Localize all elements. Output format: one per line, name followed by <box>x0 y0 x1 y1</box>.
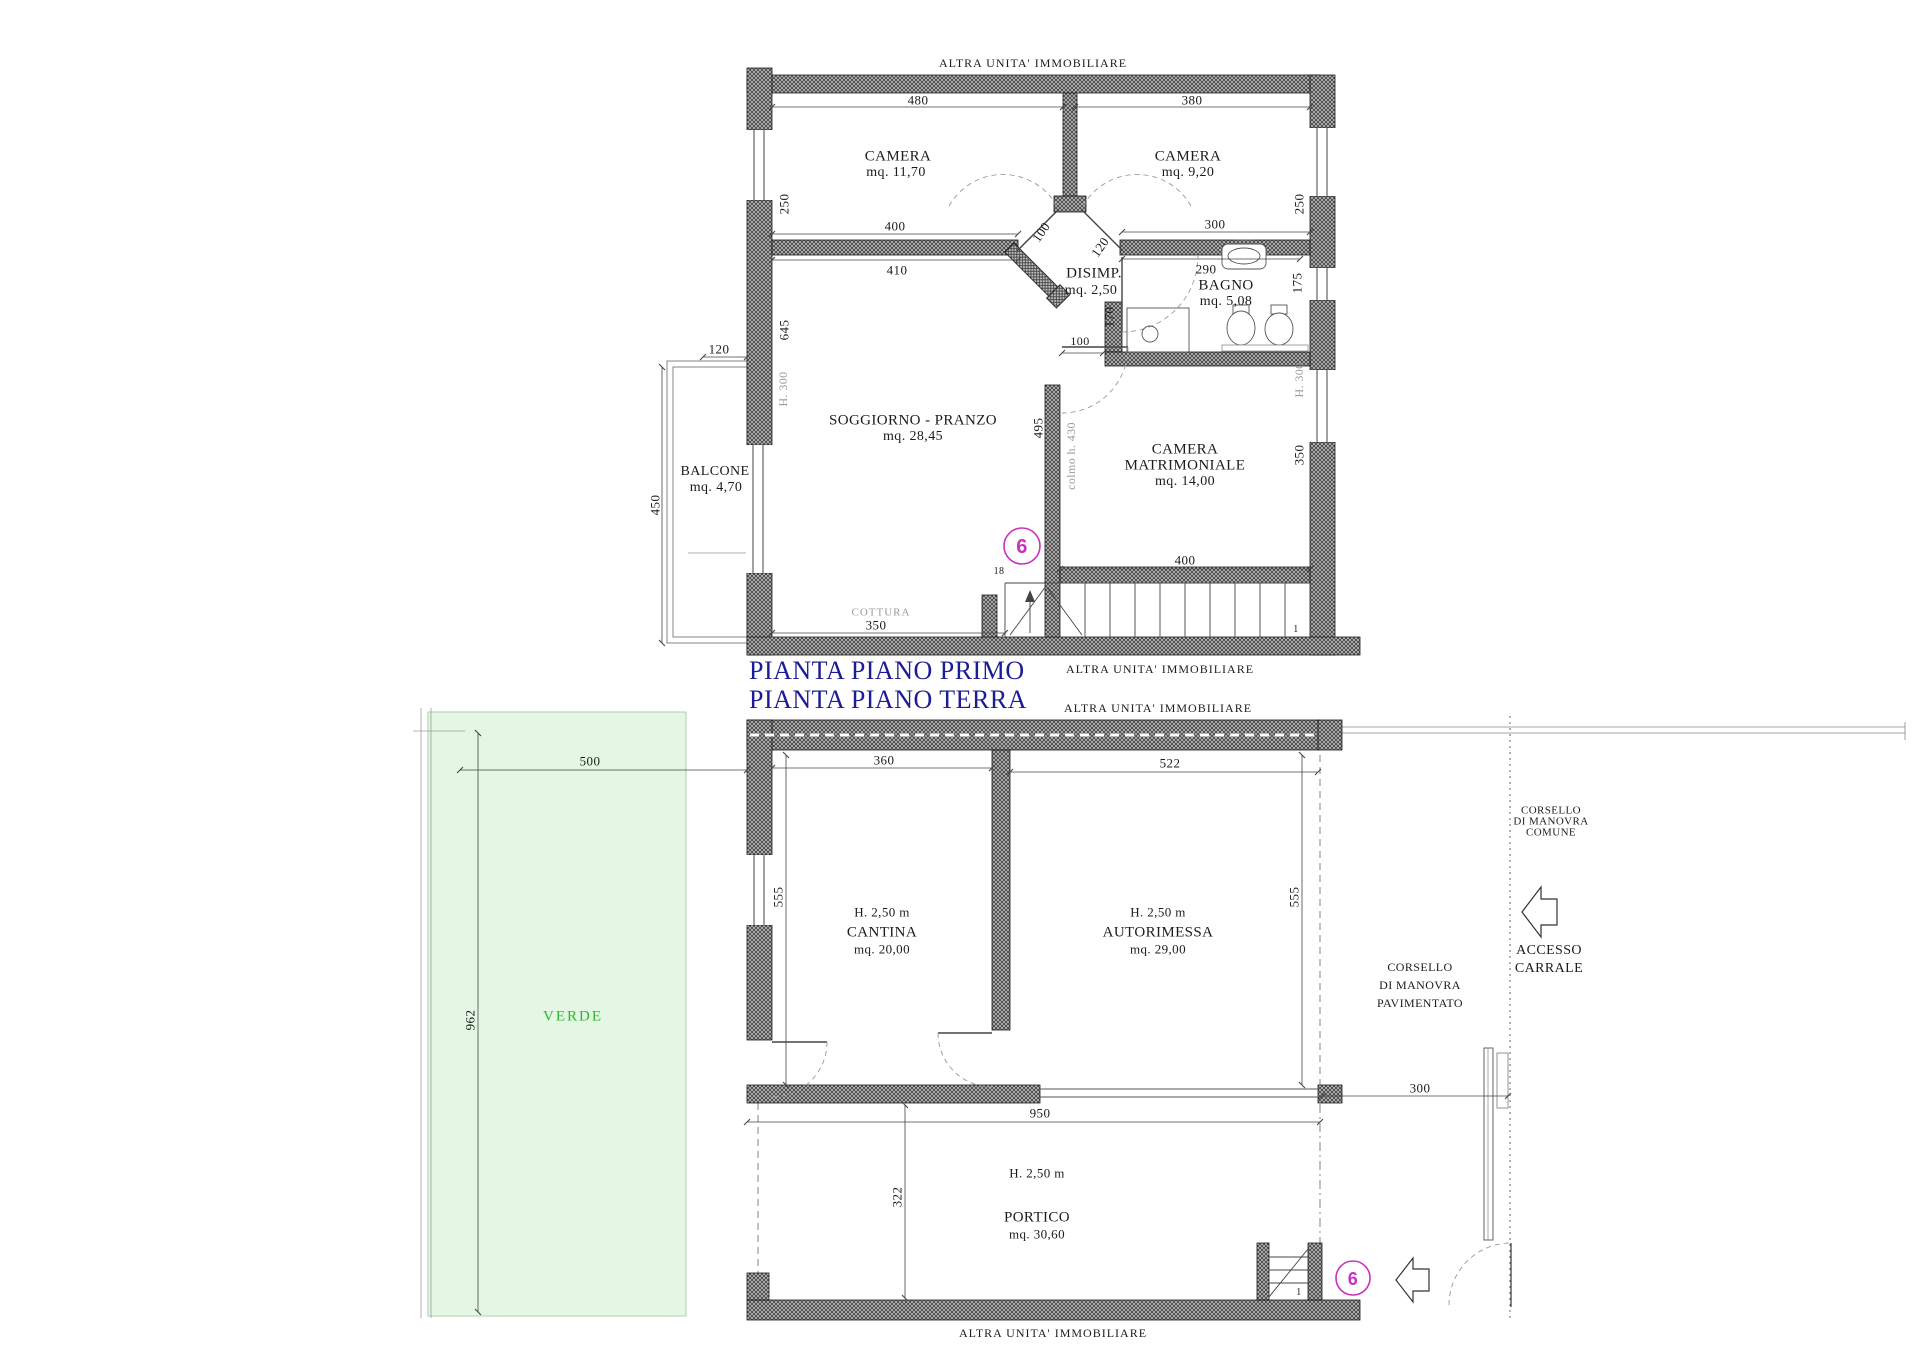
room-matrimoniale-area: mq. 14,00 <box>1155 475 1215 489</box>
dim-1-stairs: 1 <box>1293 625 1298 635</box>
accesso-carrale-arrow-icon <box>1522 887 1557 937</box>
room-balcone-area: mq. 4,70 <box>690 481 743 495</box>
plan2-boundary-lines <box>758 716 1905 1322</box>
dim-522: 522 <box>1160 757 1181 770</box>
room-matrimoniale-name1: CAMERA <box>1152 443 1219 458</box>
dim-300-bagno: 300 <box>1205 218 1226 231</box>
plan2-stairs <box>1269 1249 1308 1297</box>
verde-label: VERDE <box>543 1010 603 1025</box>
corsello-pav-l1: CORSELLO <box>1387 961 1452 973</box>
other-unit-label-plan1-bottom: ALTRA UNITA' IMMOBILIARE <box>1066 663 1254 675</box>
dim-410: 410 <box>887 264 908 277</box>
plan1-windows <box>746 128 1336 573</box>
dim-400-matr: 400 <box>1175 554 1196 567</box>
other-unit-label-plan2-top: ALTRA UNITA' IMMOBILIARE <box>1064 702 1252 714</box>
room-bagno-area: mq. 5,08 <box>1200 295 1253 309</box>
room-soggiorno-name: SOGGIORNO - PRANZO <box>829 414 997 429</box>
dim-555-left: 555 <box>772 887 785 908</box>
dim-175: 175 <box>1291 273 1304 294</box>
room-cantina-area: mq. 20,00 <box>854 943 910 956</box>
dim-18-stairs: 18 <box>994 567 1005 577</box>
accesso-carrale-l1: ACCESSO <box>1516 944 1582 958</box>
dim-950: 950 <box>1030 1107 1051 1120</box>
corsello-com-l3: COMUNE <box>1526 828 1576 839</box>
dim-100-matr-door: 100 <box>1070 335 1089 347</box>
other-unit-label-bottom: ALTRA UNITA' IMMOBILIARE <box>959 1327 1147 1339</box>
dim-250-right: 250 <box>1293 194 1306 215</box>
portico-height: H. 2,50 m <box>1009 1167 1065 1180</box>
room-bagno-name: BAGNO <box>1198 279 1253 294</box>
plan2-gate-fence <box>1449 1048 1511 1307</box>
cantina-height: H. 2,50 m <box>854 906 910 919</box>
dim-290: 290 <box>1196 263 1217 276</box>
page-title-first-floor: PIANTA PIANO PRIMO <box>749 658 1025 684</box>
unit-number-badge-plan1: 6 <box>1016 537 1028 557</box>
dim-300-corsello: 300 <box>1410 1082 1431 1095</box>
dim-962: 962 <box>464 1010 477 1031</box>
dim-495: 495 <box>1032 418 1045 439</box>
dim-322: 322 <box>891 1187 904 1208</box>
dim-645: 645 <box>778 320 791 341</box>
room-portico-area: mq. 30,60 <box>1009 1228 1065 1241</box>
dim-360: 360 <box>874 754 895 767</box>
room-camera1-name: CAMERA <box>865 150 932 165</box>
room-camera2-area: mq. 9,20 <box>1162 166 1215 180</box>
room-autorimessa-area: mq. 29,00 <box>1130 943 1186 956</box>
dim-h300-left: H. 300 <box>777 371 789 406</box>
other-unit-label-top: ALTRA UNITA' IMMOBILIARE <box>939 57 1127 69</box>
dim-480: 480 <box>908 94 929 107</box>
autorimessa-height: H. 2,50 m <box>1130 906 1186 919</box>
dim-colmo: colmo h. 430 <box>1065 422 1077 490</box>
dim-h300-right: H. 300 <box>1293 362 1305 397</box>
dim-500: 500 <box>580 755 601 768</box>
corsello-pav-l3: PAVIMENTATO <box>1377 997 1463 1009</box>
dim-120-balcone: 120 <box>709 343 730 356</box>
dim-400: 400 <box>885 220 906 233</box>
room-disimpegno-name: DISIMP. <box>1066 267 1122 282</box>
room-camera1-area: mq. 11,70 <box>866 166 925 180</box>
room-camera2-name: CAMERA <box>1155 150 1222 165</box>
corsello-pav-l2: DI MANOVRA <box>1379 979 1461 991</box>
room-matrimoniale-name2: MATRIMONIALE <box>1125 459 1246 474</box>
floorplan-page: ALTRA UNITA' IMMOBILIARE ALTRA UNITA' IM… <box>0 0 1920 1357</box>
dim-380: 380 <box>1182 94 1203 107</box>
dim-450: 450 <box>649 495 662 516</box>
dim-250-left: 250 <box>778 194 791 215</box>
room-soggiorno-area: mq. 28,45 <box>883 430 943 444</box>
dim-350-right: 350 <box>1293 445 1306 466</box>
room-autorimessa-name: AUTORIMESSA <box>1103 926 1214 941</box>
dim-1-stairs-plan2: 1 <box>1296 1288 1301 1298</box>
plan1-walls <box>747 68 1360 655</box>
plan2-openings <box>746 855 1318 1097</box>
room-portico-name: PORTICO <box>1004 1211 1070 1226</box>
accesso-carrale-l2: CARRALE <box>1515 962 1583 976</box>
dim-555-right: 555 <box>1288 887 1301 908</box>
dim-170: 170 <box>1103 307 1116 328</box>
room-disimpegno-area: mq. 2,50 <box>1065 284 1118 298</box>
page-title-ground-floor: PIANTA PIANO TERRA <box>749 687 1027 713</box>
room-cantina-name: CANTINA <box>847 926 917 941</box>
unit-number-badge-plan2: 6 <box>1348 1270 1358 1288</box>
entrance-arrow-icon <box>1396 1258 1429 1302</box>
dim-350-sogg: 350 <box>866 619 887 632</box>
room-balcone-name: BALCONE <box>681 465 750 479</box>
